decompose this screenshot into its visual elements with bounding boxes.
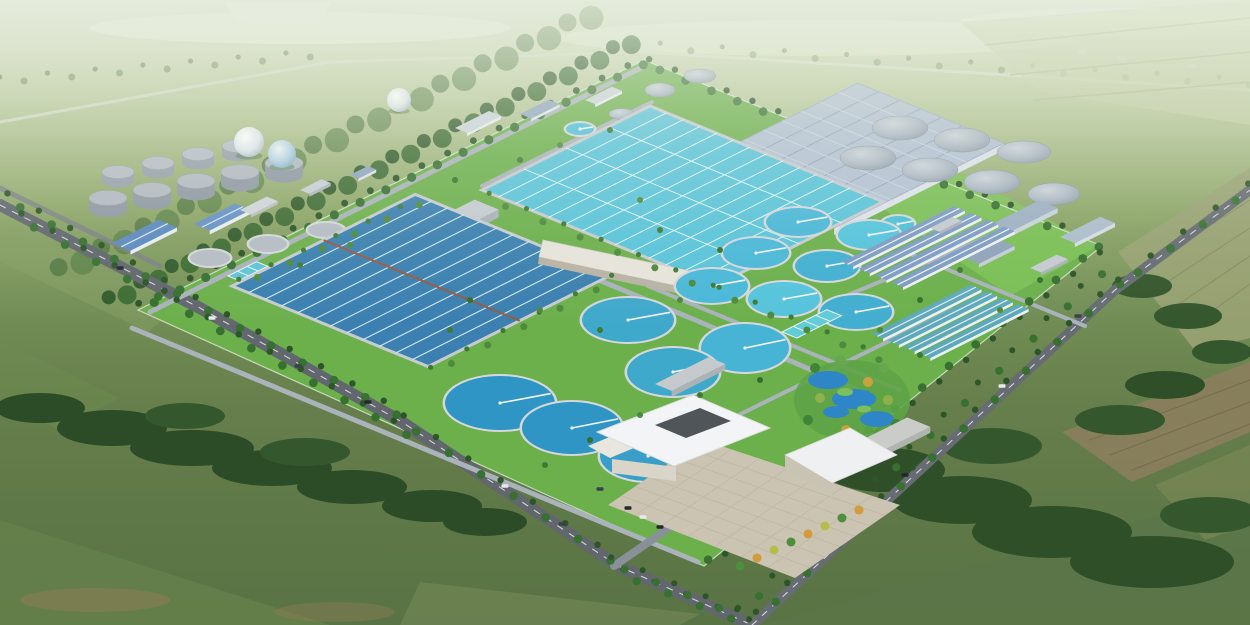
- aerial-rendering: [0, 0, 1250, 625]
- atmospheric-haze: [0, 0, 1250, 625]
- rendering-canvas: [0, 0, 1250, 625]
